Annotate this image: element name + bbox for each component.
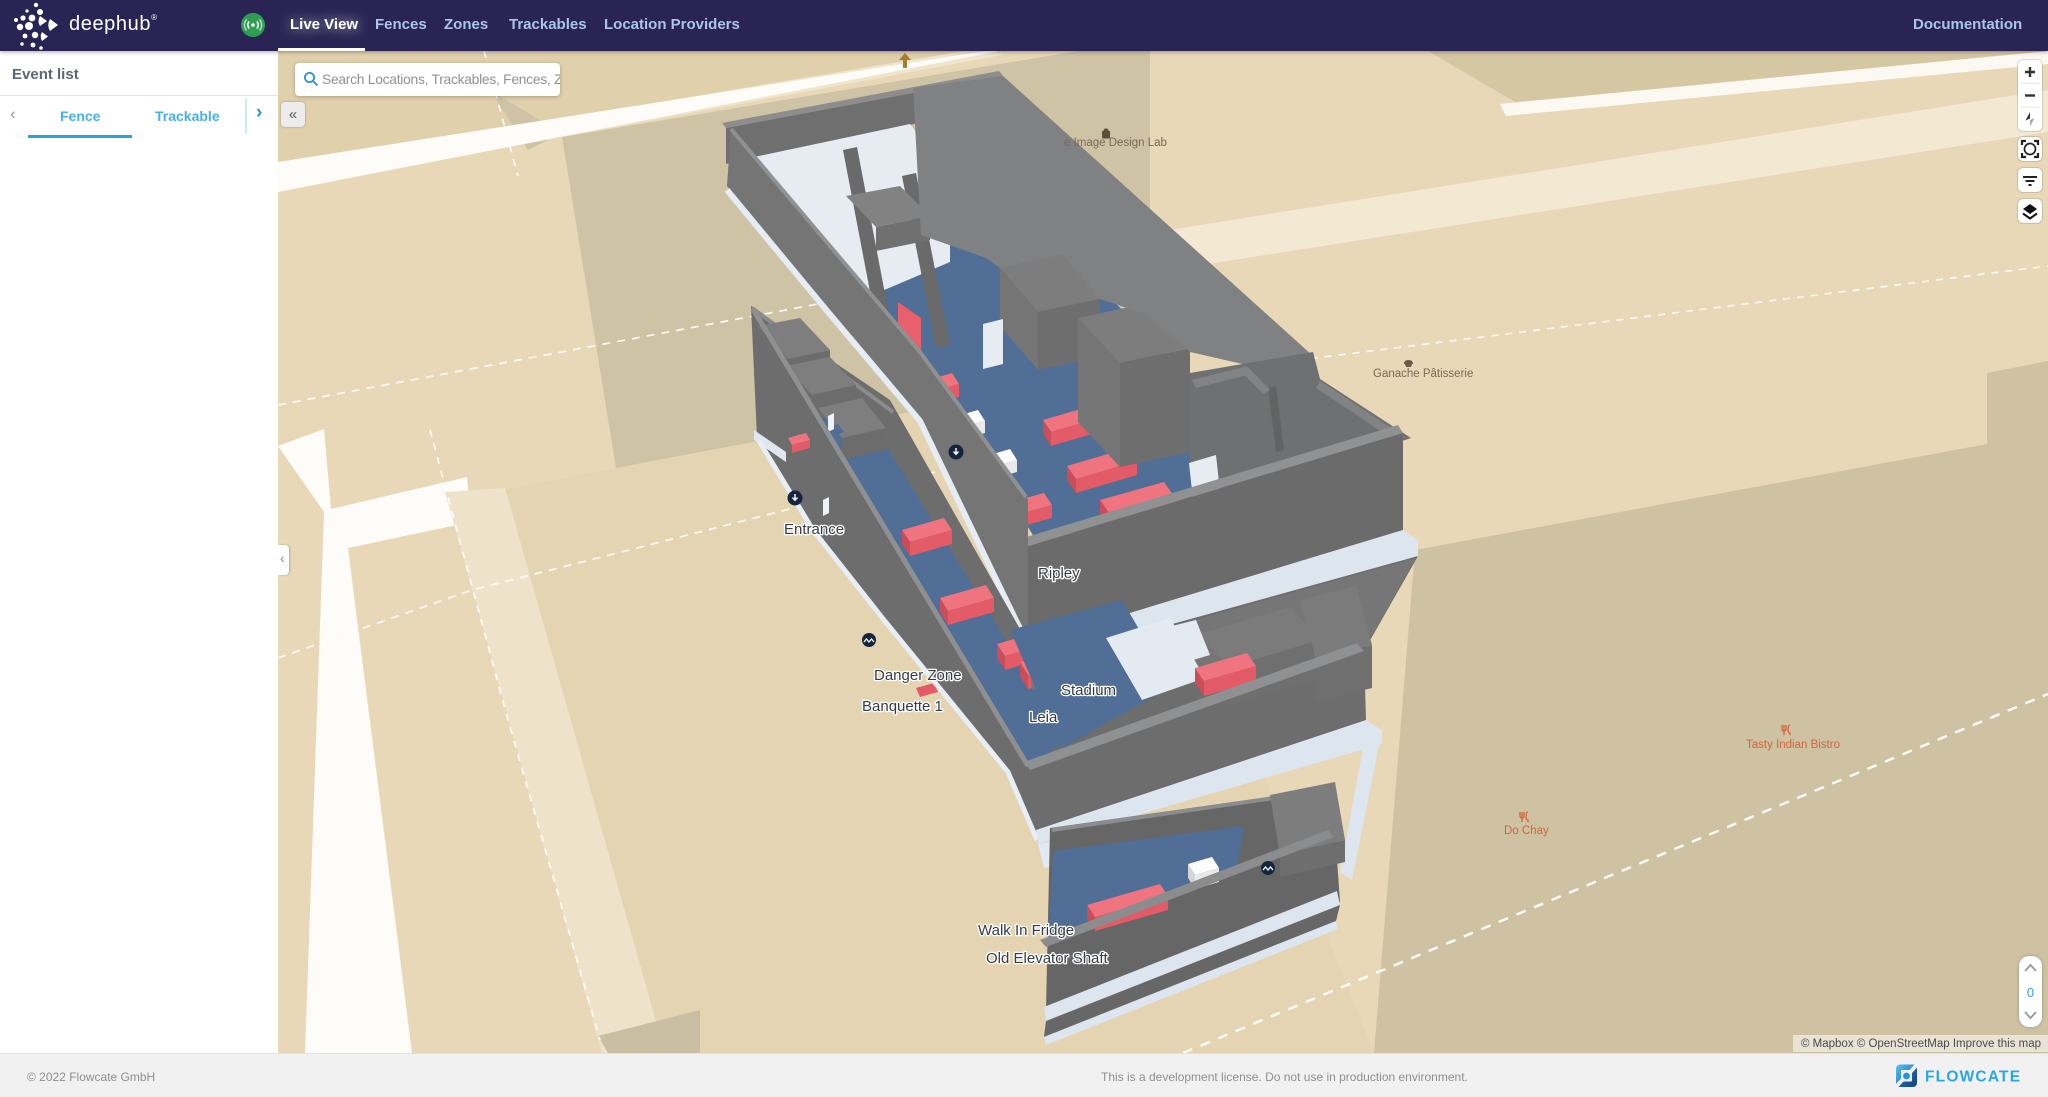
svg-text:Danger Zone: Danger Zone	[874, 667, 962, 684]
svg-text:Entrance: Entrance	[784, 521, 844, 538]
svg-text:Old Elevator Shaft: Old Elevator Shaft	[986, 950, 1109, 967]
svg-text:Do Chay: Do Chay	[1504, 825, 1549, 837]
svg-text:Leia: Leia	[1029, 709, 1058, 726]
svg-text:Ripley: Ripley	[1038, 565, 1080, 582]
svg-text:Walk In Fridge: Walk In Fridge	[978, 922, 1074, 939]
svg-text:Tasty Indian Bistro: Tasty Indian Bistro	[1746, 739, 1840, 751]
svg-text:FLOWCATE: FLOWCATE	[1925, 1069, 2021, 1086]
svg-text:Ganache Pâtisserie: Ganache Pâtisserie	[1373, 368, 1473, 380]
svg-text:Stadium: Stadium	[1061, 682, 1116, 699]
svg-text:e Image Design Lab: e Image Design Lab	[1064, 137, 1167, 149]
svg-text:© Mapbox © OpenStreetMap Impro: © Mapbox © OpenStreetMap Improve this ma…	[1801, 1038, 2041, 1050]
svg-text:0: 0	[2027, 985, 2034, 1000]
svg-text:Banquette 1: Banquette 1	[862, 698, 943, 715]
